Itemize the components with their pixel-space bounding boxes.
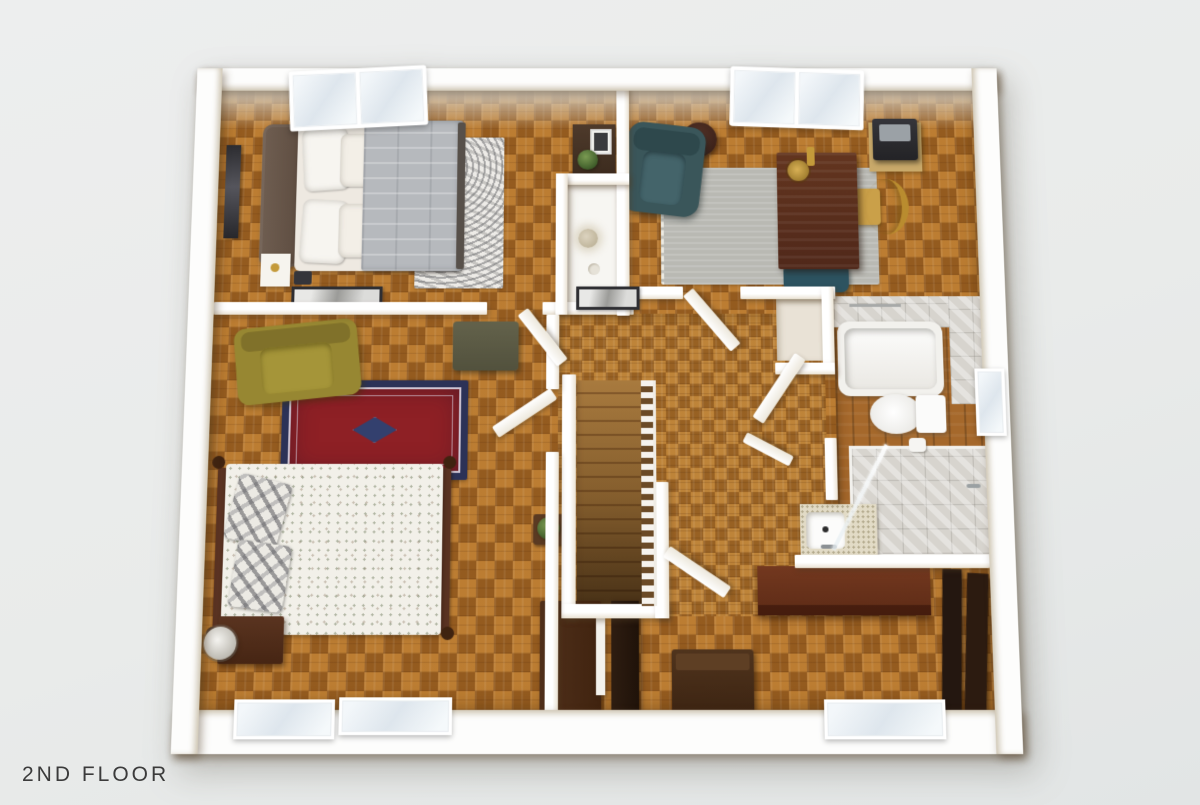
staircase-down [577,380,642,606]
chest-lid [676,654,750,671]
bathtub-basin [844,328,937,389]
wall-bedroom2-right-lower [545,452,559,712]
bed-post [443,456,456,469]
lamp-stem [807,147,815,166]
bed-post [441,627,454,640]
window-pane [827,703,943,737]
olive-armchair [233,317,362,406]
wall-office-left [616,87,629,316]
potted-plant [577,150,598,170]
bathtub [837,322,945,397]
armchair-seat [259,341,334,394]
stair-railing [641,380,657,606]
linen-closet-floor [776,298,825,361]
trinket-dish [588,263,600,275]
hall-picture-frame [576,287,639,310]
long-mahogany-dresser [757,566,931,615]
stair-wall-left [561,374,576,618]
window-pane [977,371,1003,432]
window-bathroom [974,369,1006,436]
skylight-pane [293,72,358,127]
teal-recliner [619,120,707,219]
storage-chest [672,649,755,714]
shelf-with-plant [573,124,616,175]
towel-bar [849,304,901,307]
floor-plan-render: 2ND FLOOR [0,0,1200,805]
sink-drain [822,526,828,532]
stair-wall-bottom [561,604,669,618]
wall-bedrooms-divider [214,302,488,315]
window-lower-right-room [824,699,946,739]
skylight-pane [733,70,795,124]
hall-art-print [579,289,636,306]
tall-cabinet [965,573,989,719]
floor-plan [171,68,1024,754]
skylight-office [729,66,864,130]
wall-nook-left [555,173,567,314]
wall-closet-right [821,287,835,375]
tall-cabinet [942,569,962,715]
skylight-bedroom-upper-left [289,65,429,132]
toilet-paper-holder [909,438,926,452]
dark-accessory [294,271,312,285]
bed-lower-left [210,460,453,639]
wall-lower-room-top [795,555,990,568]
leaning-door-panel [596,618,605,695]
olive-bench [453,322,519,371]
recliner-seat [638,149,688,206]
bed-upper-left [259,121,466,273]
window-bedroom-lower-left-1 [233,699,335,739]
gray-duvet [361,121,464,271]
window-bedroom-lower-left-2 [338,697,452,735]
skylight-pane [798,72,860,126]
skylight-pane [359,69,424,124]
window-pane [236,703,332,737]
floor-title: 2ND FLOOR [22,763,169,787]
toilet [869,392,950,436]
printer-top-panel [879,124,911,141]
shower-head [966,484,980,488]
toilet-tank [915,395,946,433]
plaid-pillow [227,539,292,614]
printer [872,119,918,160]
print-art [594,133,608,151]
wall-bathroom-left [825,438,838,500]
window-pane [342,700,450,732]
pampas-vase [578,229,598,248]
